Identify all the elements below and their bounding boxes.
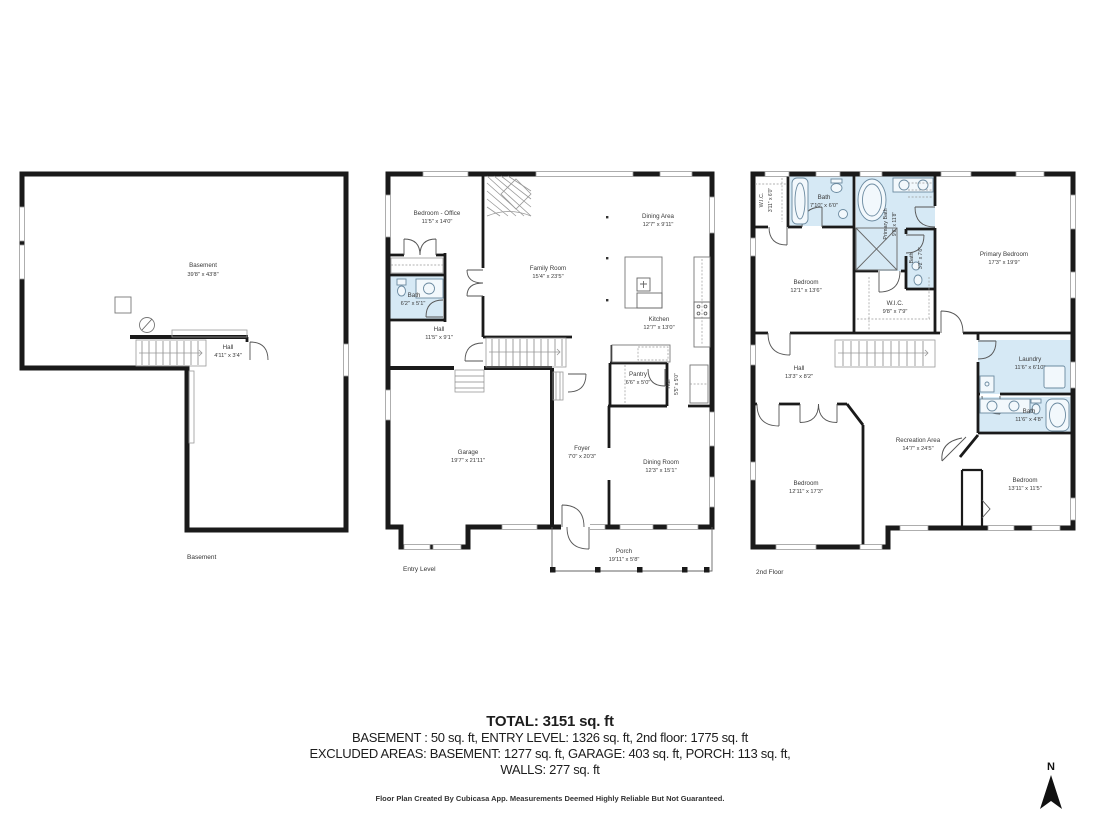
entry-open-plan-dots — [606, 216, 608, 301]
area-summary: TOTAL: 3151 sq. ft BASEMENT : 50 sq. ft,… — [0, 714, 1100, 803]
room-dims: 12'1" x 13'6" — [790, 288, 821, 294]
room-dims: 11'5" x 9'1" — [425, 335, 453, 341]
room-dims: 17'3" x 19'9" — [988, 260, 1019, 266]
entry-bedroom-closet — [391, 258, 443, 273]
basement-floor-plan: Basement 39'8" x 43'8" Hall 4'11" x 3'4"… — [10, 162, 350, 565]
room-dims: 14'7" x 24'5" — [902, 446, 933, 452]
room-dims: 9'8" x 7'9" — [883, 309, 908, 315]
room-label: Bath — [408, 292, 421, 299]
room-label: Kitchen — [649, 316, 670, 323]
floor-name-2nd-floor: 2nd Floor — [756, 569, 784, 576]
room-dims: 11'6" x 4'8" — [1015, 417, 1043, 423]
credit-text: Floor Plan Created By Cubicasa App. Meas… — [0, 794, 1100, 803]
room-label: Recreation Area — [896, 437, 941, 444]
room-label: Pantry — [629, 371, 648, 378]
room-label: Bedroom - Office — [414, 210, 461, 217]
room-dims: 15'4" x 23'5" — [532, 274, 563, 280]
entry-level-floor-plan: Bedroom - Office 11'5" x 14'0" Bath 6'2"… — [383, 160, 728, 587]
basement-hall-door — [250, 342, 268, 360]
room-dims: 3'2" x 7'6" — [918, 247, 924, 269]
room-label: Basement — [189, 262, 217, 269]
room-label: Bath — [818, 194, 831, 201]
room-dims: 6'2" x 5'1" — [401, 301, 426, 307]
room-label: Dining Room — [643, 459, 679, 466]
room-label: Bedroom — [1012, 477, 1037, 484]
room-label: Hall — [434, 326, 445, 333]
room-dims: 7'10" x 6'0" — [810, 203, 838, 209]
room-label: Primary Bath — [883, 208, 889, 239]
room-label: W.I.C. — [887, 300, 904, 307]
floor-name-basement: Basement — [187, 554, 216, 561]
north-compass-icon: N — [1028, 756, 1074, 816]
room-dims: 11'6" x 6'10" — [1015, 365, 1046, 371]
room-dims: 4'11" x 3'4" — [214, 353, 242, 359]
room-label: Bath — [909, 252, 915, 263]
room-label: Hall — [223, 344, 234, 351]
room-dims: 6'6" x 5'0" — [626, 380, 651, 386]
second-floor-plan: W.I.C. 3'11" x 6'0" Bath 7'10" x 6'0" Pr… — [745, 160, 1085, 587]
room-label: Foyer — [574, 445, 590, 452]
north-arrow — [1040, 775, 1062, 809]
room-dims: 12'7" x 9'11" — [643, 222, 674, 228]
room-dims: 11'5" x 14'0" — [422, 219, 453, 225]
entry-front-door-opening — [561, 524, 590, 531]
entry-main-staircase — [486, 338, 566, 367]
compass-north-label: N — [1047, 761, 1055, 773]
room-dims: 12'7" x 13'0" — [643, 325, 674, 331]
room-dims: 3'11" x 6'0" — [768, 188, 774, 212]
entry-under-stair-closet — [553, 372, 563, 400]
excluded-areas-text: EXCLUDED AREAS: BASEMENT: 1277 sq. ft, G… — [0, 746, 1100, 762]
room-dims: 39'8" x 43'8" — [187, 272, 218, 278]
second-staircase — [835, 340, 935, 367]
entry-winder-staircase — [487, 176, 531, 216]
room-dims: 12'11" x 17'3" — [789, 489, 823, 495]
room-dims: 13'3" x 8'2" — [785, 374, 813, 380]
entry-garage-step — [455, 370, 484, 392]
room-label: Bedroom — [793, 279, 818, 286]
room-label: Hall — [666, 379, 672, 388]
room-label: Garage — [458, 449, 479, 456]
room-label: Bath — [1023, 408, 1036, 415]
room-dims: 12'3" x 15'1" — [645, 468, 676, 474]
room-dims: 5'5" x 5'0" — [674, 373, 680, 395]
room-label: W.I.C. — [759, 193, 765, 208]
room-dims: 9'8" x 11'8" — [892, 212, 898, 236]
room-label: Family Room — [530, 265, 566, 272]
basement-room-labels: Basement 39'8" x 43'8" Hall 4'11" x 3'4" — [187, 262, 241, 359]
room-label: Dining Area — [642, 213, 675, 220]
floor-areas-text: BASEMENT : 50 sq. ft, ENTRY LEVEL: 1326 … — [0, 730, 1100, 746]
room-label: Primary Bedroom — [980, 251, 1028, 258]
walls-area-text: WALLS: 277 sq. ft — [0, 762, 1100, 778]
room-dims: 7'0" x 20'3" — [568, 454, 596, 460]
room-dims: 19'7" x 21'11" — [451, 458, 485, 464]
room-label: Porch — [616, 548, 633, 555]
total-area-text: TOTAL: 3151 sq. ft — [0, 714, 1100, 730]
room-dims: 13'11" x 11'5" — [1008, 486, 1042, 492]
room-label: Bedroom — [793, 480, 818, 487]
room-dims: 19'11" x 5'8" — [609, 557, 640, 563]
room-label: Hall — [794, 365, 805, 372]
floor-plan-page: { "floors": [ { "name": "Basement", "roo… — [0, 0, 1100, 825]
room-label: Laundry — [1019, 356, 1042, 363]
floor-name-entry-level: Entry Level — [403, 566, 436, 573]
